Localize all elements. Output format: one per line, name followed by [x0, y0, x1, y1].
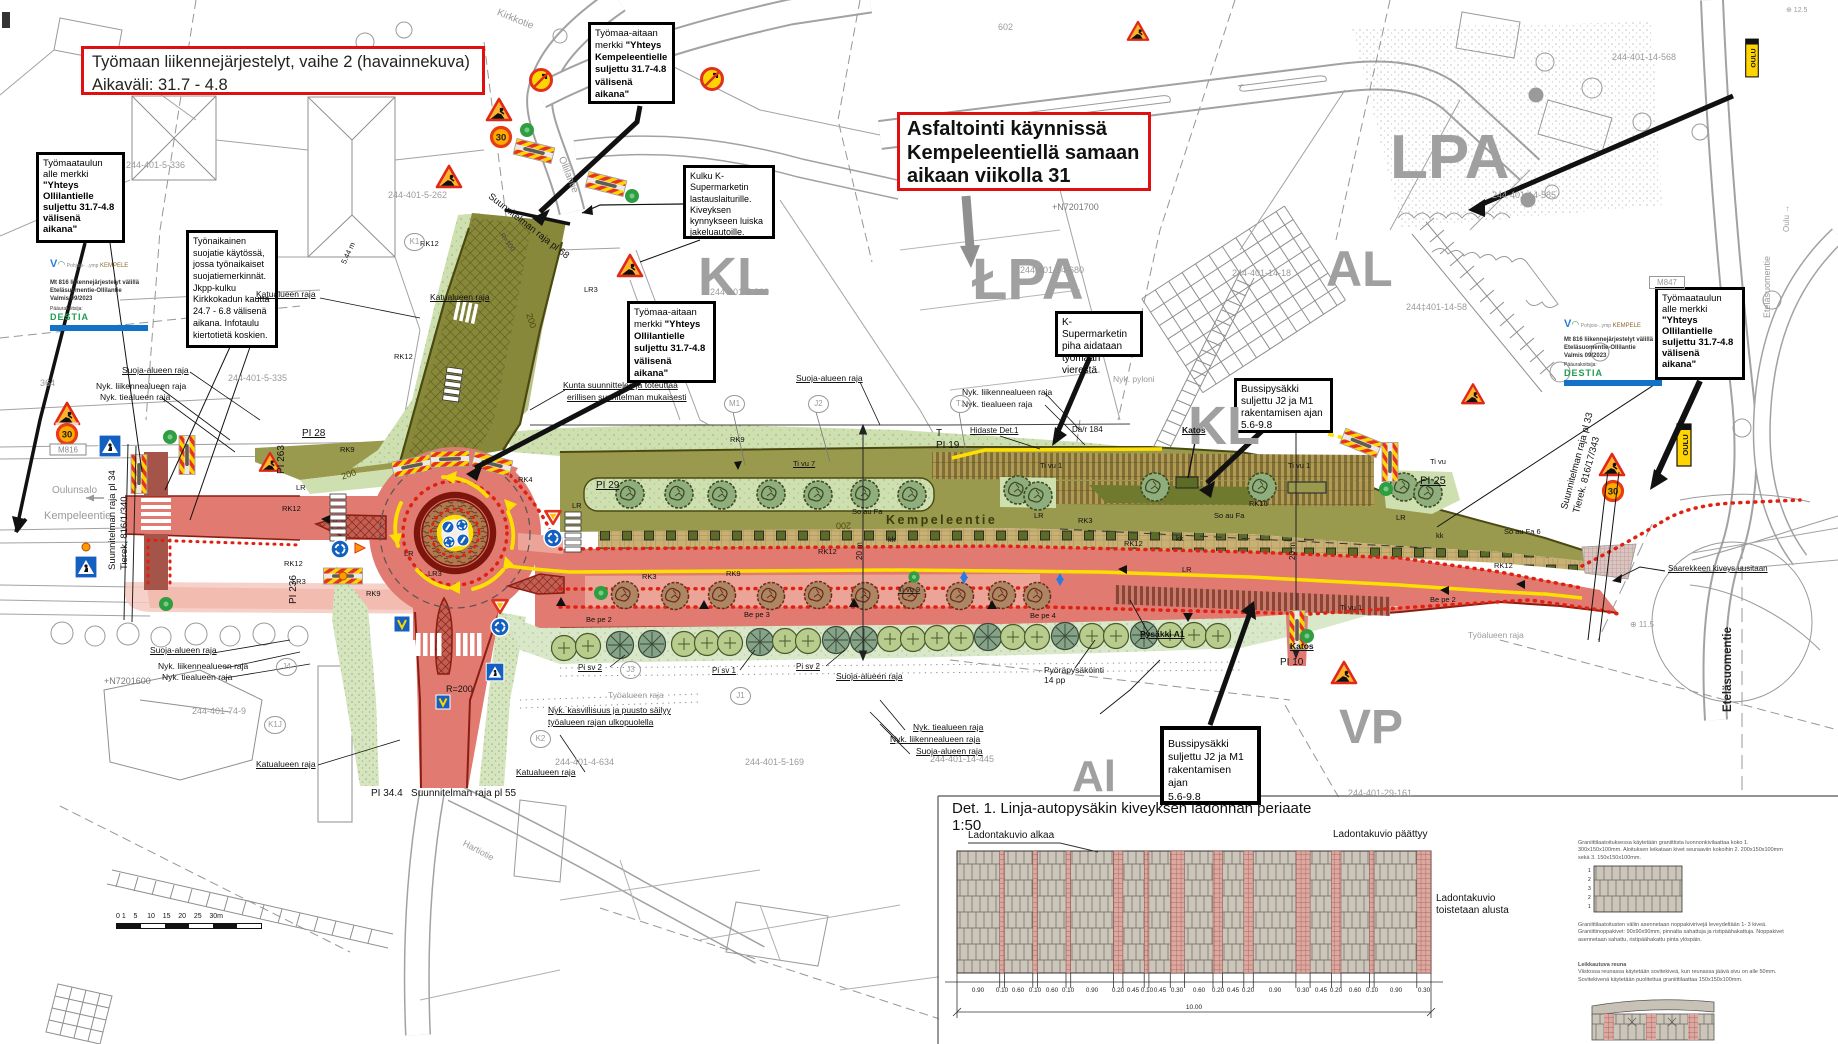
svg-text:0.10: 0.10	[1062, 987, 1075, 994]
svg-text:0.30: 0.30	[1297, 987, 1310, 994]
svg-text:2: 2	[1588, 877, 1591, 883]
svg-text:0.90: 0.90	[1086, 987, 1099, 994]
svg-text:Kempeleentie: Kempeleentie	[886, 513, 997, 527]
svg-text:0.30: 0.30	[1171, 987, 1184, 994]
svg-text:0.90: 0.90	[1390, 987, 1403, 994]
svg-text:0.90: 0.90	[1269, 987, 1282, 994]
svg-text:0.10: 0.10	[1141, 987, 1154, 994]
svg-text:10.00: 10.00	[1186, 1004, 1203, 1011]
svg-text:0.60: 0.60	[1349, 987, 1362, 994]
svg-text:0.60: 0.60	[1046, 987, 1059, 994]
svg-text:0.45: 0.45	[1315, 987, 1328, 994]
svg-text:0.10: 0.10	[1366, 987, 1379, 994]
svg-text:0.30: 0.30	[1418, 987, 1431, 994]
svg-text:0.45: 0.45	[1154, 987, 1167, 994]
svg-text:0.90: 0.90	[972, 987, 985, 994]
svg-text:0.60: 0.60	[1193, 987, 1206, 994]
svg-text:3: 3	[1588, 886, 1591, 892]
svg-text:0.45: 0.45	[1127, 987, 1140, 994]
svg-text:M816: M816	[58, 446, 79, 455]
svg-text:0.10: 0.10	[1029, 987, 1042, 994]
svg-text:1: 1	[1588, 868, 1591, 874]
svg-text:0.20: 0.20	[1112, 987, 1125, 994]
svg-text:0.10: 0.10	[996, 987, 1009, 994]
svg-text:0.20: 0.20	[1330, 987, 1343, 994]
svg-text:2: 2	[1588, 895, 1591, 901]
svg-text:0.20: 0.20	[1212, 987, 1225, 994]
svg-text:0.20: 0.20	[1242, 987, 1255, 994]
svg-text:1: 1	[1588, 904, 1591, 910]
svg-text:0.60: 0.60	[1012, 987, 1025, 994]
svg-text:0.45: 0.45	[1227, 987, 1240, 994]
